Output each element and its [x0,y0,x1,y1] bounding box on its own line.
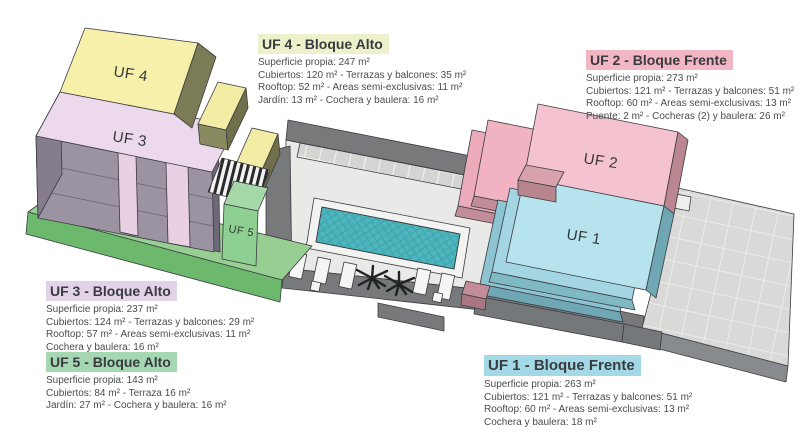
uf3-info-line: Cubiertos: 124 m² - Terrazas y balcones:… [46,317,254,330]
bloque-frente-building: UF 2 UF 1 [455,104,794,382]
uf1-info-line: Rooftop: 60 m² - Areas semi-exclusivas: … [484,404,692,417]
uf3-info-line: Superficie propia: 237 m² [46,304,254,317]
uf1-info-line: Cochera y baulera: 18 m² [484,417,692,430]
uf5-info-panel: UF 5 - Bloque Alto Superficie propia: 14… [46,352,227,413]
uf2-info-title: UF 2 - Bloque Frente [586,50,794,70]
uf4-info-line: Cubiertos: 120 m² - Terrazas y balcones:… [258,70,466,83]
uf5-info-line: Cubiertos: 84 m² - Terraza 16 m² [46,388,227,401]
uf2-info-panel: UF 2 - Bloque Frente Superficie propia: … [586,50,794,123]
uf1-info-panel: UF 1 - Bloque Frente Superficie propia: … [484,355,692,429]
uf2-info-line: Puente: 2 m² - Cocheras (2) y baulera: 2… [586,111,794,124]
entry-step [378,303,444,331]
uf2-info-line: Cubiertos: 121 m² - Terrazas y balcones:… [586,86,794,99]
uf3-terrace-stripe [118,152,138,236]
uf2-info-line: Rooftop: 60 m² - Areas semi-exclusivas: … [586,98,794,111]
uf4-info-line: Superficie propia: 247 m² [258,57,466,70]
uf3-info-title: UF 3 - Bloque Alto [46,281,254,301]
uf1-info-line: Cubiertos: 121 m² - Terrazas y balcones:… [484,392,692,405]
uf2-title-highlight: UF 2 - Bloque Frente [586,50,733,70]
uf2-info-line: Superficie propia: 273 m² [586,73,794,86]
site-render: UF 3 UF 4 UF 5 UF 2 UF 1 UF 4 - Bloque A… [0,0,800,437]
uf3-info-line: Rooftop: 57 m² - Areas semi-exclusivas: … [46,329,254,342]
uf3-title-highlight: UF 3 - Bloque Alto [46,281,177,301]
uf1-title-highlight: UF 1 - Bloque Frente [484,355,641,376]
side-table [310,281,321,292]
uf4-info-panel: UF 4 - Bloque Alto Superficie propia: 24… [258,34,466,107]
uf4-title-highlight: UF 4 - Bloque Alto [258,34,389,54]
uf4-info-line: Jardín: 13 m² - Cochera y baulera: 16 m² [258,95,466,108]
uf4-info-line: Rooftop: 52 m² - Areas semi-exclusivas: … [258,82,466,95]
uf3-info-panel: UF 3 - Bloque Alto Superficie propia: 23… [46,281,254,354]
uf5-title-highlight: UF 5 - Bloque Alto [46,352,177,372]
uf1-info-line: Superficie propia: 263 m² [484,379,692,392]
uf5-info-title: UF 5 - Bloque Alto [46,352,227,372]
uf3-terrace-stripe [166,162,190,247]
uf4-info-title: UF 4 - Bloque Alto [258,34,466,54]
uf1-info-title: UF 1 - Bloque Frente [484,355,692,376]
uf5-info-line: Jardín: 27 m² - Cochera y baulera: 16 m² [46,400,227,413]
uf5-info-line: Superficie propia: 143 m² [46,375,227,388]
side-table [432,292,443,303]
